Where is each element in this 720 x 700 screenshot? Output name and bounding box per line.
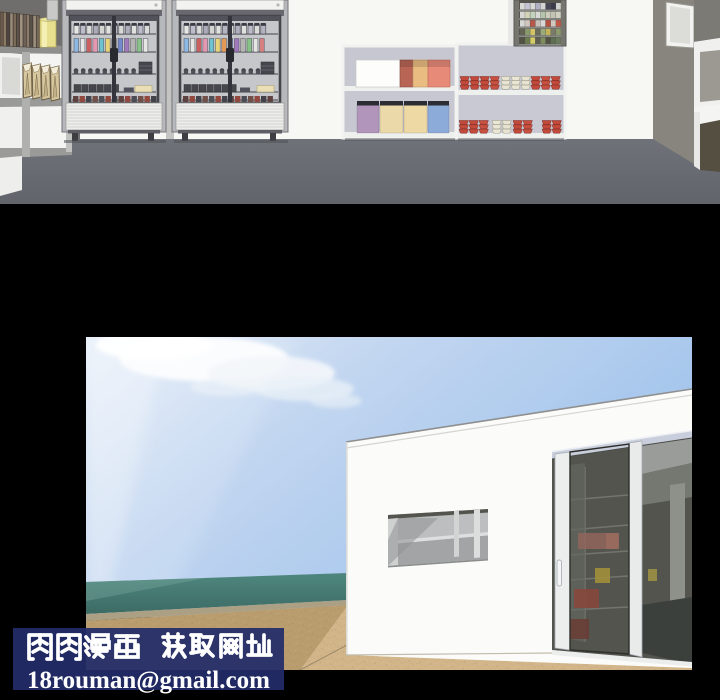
svg-text:18rouman@gmail.com: 18rouman@gmail.com (27, 667, 270, 694)
